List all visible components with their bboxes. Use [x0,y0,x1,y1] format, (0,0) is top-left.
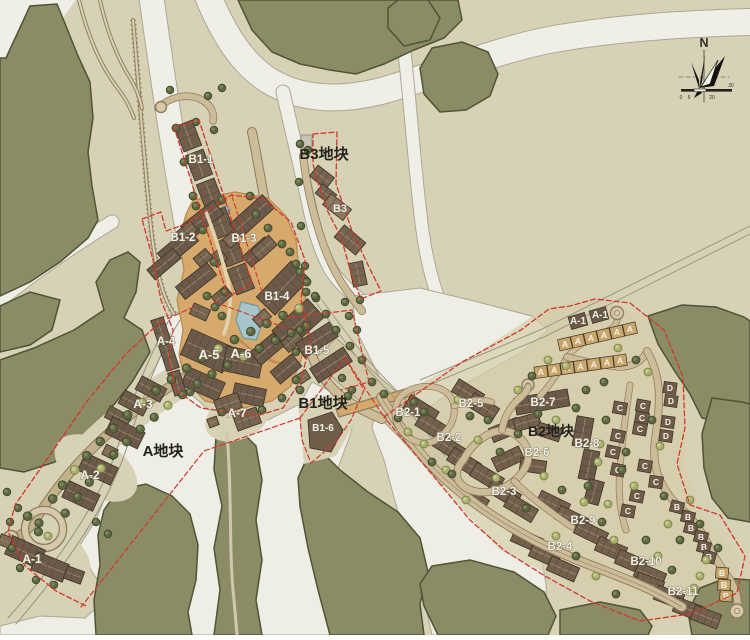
svg-text:B: B [719,568,725,578]
svg-text:B2-5: B2-5 [459,398,485,410]
svg-text:B1-2: B1-2 [171,232,196,244]
svg-text:A: A [575,336,581,346]
svg-text:D: D [663,431,669,441]
svg-text:C: C [615,431,621,441]
svg-text:C: C [637,424,643,434]
svg-text:B: B [721,580,727,590]
svg-text:B2-2: B2-2 [437,432,462,444]
svg-text:B2地块: B2地块 [528,423,575,439]
svg-text:A地块: A地块 [143,442,185,460]
svg-text:A: A [562,339,568,349]
svg-text:B2-1: B2-1 [396,407,422,419]
svg-text:A: A [601,330,607,340]
svg-text:B3地块: B3地块 [299,145,349,163]
svg-text:B2-4: B2-4 [548,541,574,553]
svg-text:A-3: A-3 [133,397,153,411]
svg-text:B1-1: B1-1 [189,154,215,166]
svg-text:A: A [627,324,633,334]
svg-text:C: C [639,413,645,423]
svg-text:C: C [642,461,648,471]
svg-text:A-5: A-5 [199,347,220,362]
svg-text:B1-4: B1-4 [265,291,291,303]
svg-text:A: A [614,327,620,337]
svg-text:A: A [588,333,594,343]
svg-text:B: B [685,512,691,522]
svg-text:B1地块: B1地块 [298,394,348,412]
svg-text:B2-3: B2-3 [492,486,517,498]
svg-text:D: D [667,383,673,393]
svg-text:B1-3: B1-3 [232,233,257,245]
svg-text:A-6: A-6 [231,346,252,361]
svg-text:10: 10 [697,83,703,89]
svg-text:B2-9: B2-9 [571,515,596,527]
svg-text:C: C [640,401,646,411]
svg-text:A-1: A-1 [22,552,42,566]
svg-text:C: C [653,477,659,487]
svg-text:A: A [578,361,584,371]
svg-text:A: A [591,360,597,370]
svg-text:D: D [665,417,671,427]
svg-text:A-1: A-1 [570,316,587,327]
svg-text:A: A [538,367,544,377]
svg-text:B2-6: B2-6 [525,447,550,459]
svg-text:B2-11: B2-11 [668,586,699,598]
svg-text:0: 0 [680,95,683,101]
svg-text:A: A [604,358,610,368]
svg-text:B3: B3 [333,203,347,215]
svg-text:C: C [634,491,640,501]
svg-text:B2-10: B2-10 [630,556,661,568]
svg-text:D: D [668,396,674,406]
svg-text:5: 5 [688,95,691,101]
svg-text:B2-8: B2-8 [575,438,601,450]
svg-text:A-4: A-4 [157,336,176,348]
svg-text:A: A [551,365,557,375]
svg-text:C: C [617,403,623,413]
svg-text:A-1: A-1 [592,310,609,321]
svg-text:B: B [688,523,694,533]
svg-text:A: A [617,356,623,366]
svg-text:20: 20 [709,95,715,101]
svg-text:C: C [610,447,616,457]
svg-text:B: B [674,502,680,512]
svg-text:30: 30 [728,83,734,89]
svg-text:N: N [699,36,708,50]
svg-text:B1-6: B1-6 [312,423,334,434]
svg-text:B2-7: B2-7 [531,397,556,409]
svg-text:A-7: A-7 [227,406,247,420]
svg-text:B1-5: B1-5 [305,345,331,357]
svg-text:A-2: A-2 [80,468,100,482]
svg-text:C: C [625,506,631,516]
svg-text:B: B [723,591,729,601]
